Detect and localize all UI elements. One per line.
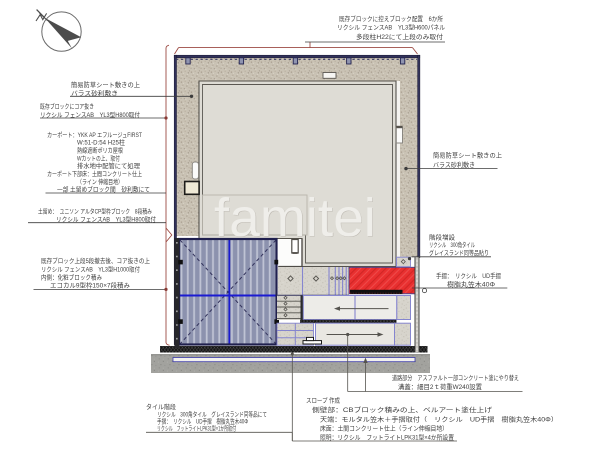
svg-text:リクシル フェンスAB YL3型H800取付: リクシル フェンスAB YL3型H800取付 <box>56 214 156 223</box>
svg-text:Wカットの上、取付: Wカットの上、取付 <box>77 153 120 162</box>
svg-text:道路部分 アスファルト一部コンクリート塗にやり替え: 道路部分 アスファルト一部コンクリート塗にやり替え <box>392 373 519 382</box>
svg-text:リクシル フェンスAB YL3型H1000取付: リクシル フェンスAB YL3型H1000取付 <box>41 264 140 273</box>
svg-text:排水地中配管にて処理: 排水地中配管にて処理 <box>77 161 141 170</box>
svg-text:照明：リクシル フットライトLPK31型×4か所設置: 照明：リクシル フットライトLPK31型×4か所設置 <box>320 432 454 441</box>
svg-text:カーポート：YKK AP エフルージュFIRST: カーポート：YKK AP エフルージュFIRST <box>47 131 142 139</box>
svg-text:簡易防草シート敷きの上: 簡易防草シート敷きの上 <box>71 80 140 89</box>
svg-text:タイル階段: タイル階段 <box>146 402 177 411</box>
svg-text:リクシル フットライトLPK31型×1か所取付: リクシル フットライトLPK31型×1か所取付 <box>157 423 236 432</box>
svg-text:側壁部：CBブロック積みの上、ベルアート塗仕上げ: 側壁部：CBブロック積みの上、ベルアート塗仕上げ <box>312 405 493 414</box>
svg-text:既存ブロックに控えブロック配置 6か所: 既存ブロックに控えブロック配置 6か所 <box>339 14 444 23</box>
svg-text:土留め： ユニソン アルタCP型枠ブロック 8段積み: 土留め： ユニソン アルタCP型枠ブロック 8段積み <box>38 207 152 216</box>
svg-text:既存ブロックにコア抜き: 既存ブロックにコア抜き <box>40 102 94 111</box>
svg-text:グレイスランド同等品貼り: グレイスランド同等品貼り <box>429 248 489 257</box>
svg-text:（ライン 伸縮目地）: （ライン 伸縮目地） <box>77 177 123 186</box>
svg-text:多段柱H22にて上段のみ取付: 多段柱H22にて上段のみ取付 <box>356 32 443 41</box>
svg-text:手摺： リクシル UD手摺: 手摺： リクシル UD手摺 <box>436 271 501 280</box>
svg-text:熱線遮断ポリカ屋根: 熱線遮断ポリカ屋根 <box>77 145 124 154</box>
svg-text:樹脂丸笠木40Φ: 樹脂丸笠木40Φ <box>447 280 495 289</box>
svg-text:エコカル9型枠150×7段積み: エコカル9型枠150×7段積み <box>50 281 130 290</box>
svg-text:床面：土間コンクリート仕上（ライン伸縮目地）: 床面：土間コンクリート仕上（ライン伸縮目地） <box>320 424 448 433</box>
svg-text:スロープ 作成: スロープ 作成 <box>306 396 341 405</box>
svg-text:内側：化粧ブロック積み: 内側：化粧ブロック積み <box>41 273 102 282</box>
svg-text:一部 土留めブロック間 砂利敷にて: 一部 土留めブロック間 砂利敷にて <box>57 185 150 194</box>
svg-text:リクシル フェンスAB YL3型H600パネル: リクシル フェンスAB YL3型H600パネル <box>337 23 445 32</box>
svg-text:手摺： リクシル UD手摺 樹脂丸笠木40Φ: 手摺： リクシル UD手摺 樹脂丸笠木40Φ <box>157 416 248 425</box>
svg-text:既存ブロック上段5段撤去後、コア抜きの上: 既存ブロック上段5段撤去後、コア抜きの上 <box>41 256 150 265</box>
svg-text:天端：モルタル笠木＋手摺取付（ リクシル UD手摺 樹脂丸笠: 天端：モルタル笠木＋手摺取付（ リクシル UD手摺 樹脂丸笠木40Φ） <box>320 414 558 423</box>
svg-text:リクシル 300角タイル: リクシル 300角タイル <box>429 240 475 249</box>
svg-text:溝蓋：細目2ｔ荷重W240設置: 溝蓋：細目2ｔ荷重W240設置 <box>398 382 482 391</box>
svg-text:リクシル フェンスAB YL3型H800取付: リクシル フェンスAB YL3型H800取付 <box>40 110 140 119</box>
svg-text:カーポート下部床：土間コンクリート仕上: カーポート下部床：土間コンクリート仕上 <box>47 169 142 178</box>
svg-text:W:51-D:54 H25柱: W:51-D:54 H25柱 <box>77 138 126 147</box>
svg-text:バラス砂利敷き: バラス砂利敷き <box>71 88 118 97</box>
svg-text:簡易防草シート敷きの上: 簡易防草シート敷きの上 <box>433 151 502 160</box>
svg-text:リクシル 300角タイル グレイスランド同等品にて: リクシル 300角タイル グレイスランド同等品にて <box>157 409 267 418</box>
svg-text:バラス砂利敷き: バラス砂利敷き <box>433 160 475 169</box>
svg-text:階段増設: 階段増設 <box>429 232 456 241</box>
